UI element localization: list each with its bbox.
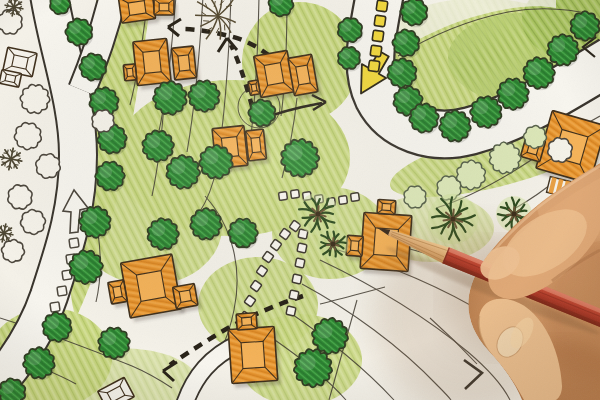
photo-landscape-plan (0, 0, 600, 400)
site-plan-photo (0, 0, 600, 400)
photo-grain (0, 0, 600, 400)
